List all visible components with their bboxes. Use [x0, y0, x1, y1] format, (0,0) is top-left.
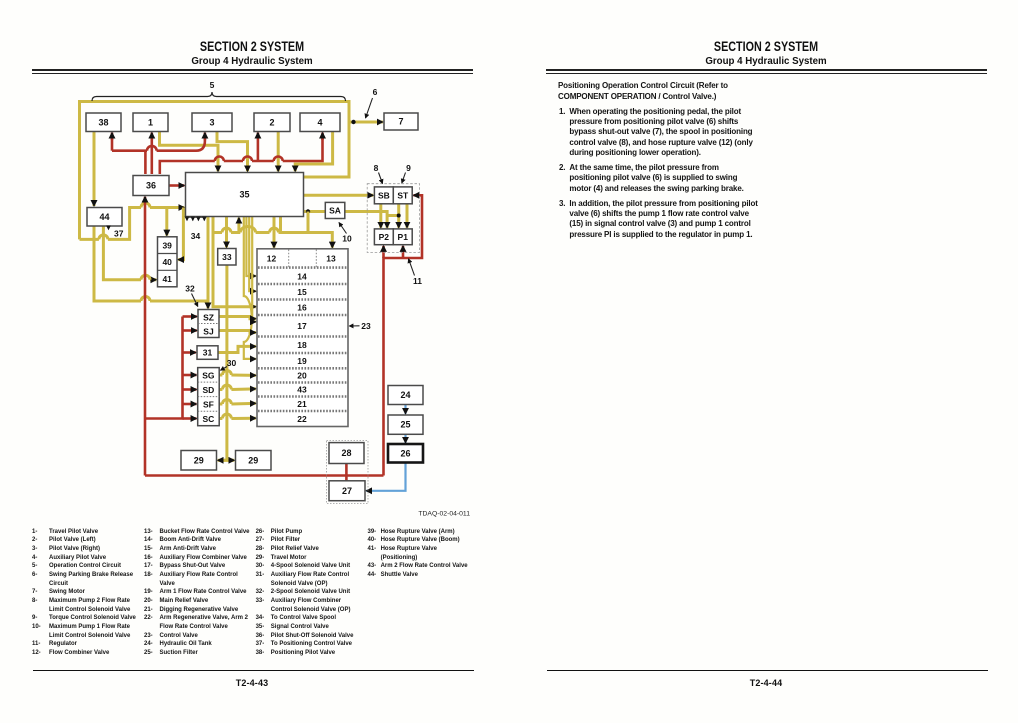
svg-text:SG: SG [202, 370, 215, 380]
svg-text:41: 41 [162, 274, 172, 284]
svg-text:4: 4 [317, 117, 322, 127]
svg-text:35: 35 [239, 190, 249, 200]
svg-text:25: 25 [400, 420, 410, 430]
svg-text:11: 11 [413, 276, 422, 286]
svg-text:32: 32 [185, 284, 195, 294]
svg-text:SZ: SZ [203, 312, 214, 322]
svg-text:22: 22 [297, 414, 307, 424]
svg-text:P1: P1 [398, 232, 409, 242]
svg-text:12: 12 [267, 254, 277, 264]
svg-text:34: 34 [191, 231, 201, 241]
svg-text:13: 13 [326, 254, 336, 264]
svg-text:9: 9 [406, 163, 411, 173]
svg-text:8: 8 [374, 163, 379, 173]
svg-text:3: 3 [209, 117, 214, 127]
svg-text:40: 40 [162, 257, 172, 267]
svg-text:7: 7 [398, 117, 403, 127]
svg-text:20: 20 [297, 371, 307, 381]
svg-text:29: 29 [248, 455, 258, 465]
svg-text:44: 44 [99, 212, 109, 222]
svg-text:36: 36 [146, 181, 156, 191]
svg-text:16: 16 [297, 302, 307, 312]
svg-text:SJ: SJ [203, 326, 214, 336]
svg-text:18: 18 [297, 340, 307, 350]
svg-text:24: 24 [400, 390, 410, 400]
svg-text:SD: SD [202, 385, 214, 395]
svg-text:39: 39 [162, 240, 172, 250]
svg-text:6: 6 [373, 87, 378, 97]
svg-text:SB: SB [378, 190, 390, 200]
svg-text:29: 29 [194, 455, 204, 465]
svg-text:30: 30 [227, 358, 237, 368]
svg-text:2: 2 [269, 117, 274, 127]
svg-text:43: 43 [297, 385, 307, 395]
svg-text:28: 28 [341, 448, 351, 458]
svg-text:10: 10 [342, 234, 352, 244]
svg-text:15: 15 [297, 287, 307, 297]
svg-text:1: 1 [148, 117, 153, 127]
svg-text:SC: SC [202, 414, 214, 424]
svg-text:P2: P2 [379, 232, 390, 242]
svg-text:37: 37 [114, 228, 124, 238]
svg-text:SA: SA [329, 205, 341, 215]
svg-text:33: 33 [222, 252, 232, 262]
svg-text:23: 23 [361, 321, 371, 331]
svg-text:38: 38 [98, 117, 108, 127]
svg-text:14: 14 [297, 272, 307, 282]
svg-text:ST: ST [397, 190, 409, 200]
svg-text:31: 31 [203, 348, 213, 358]
svg-text:5: 5 [210, 80, 215, 90]
svg-text:SF: SF [203, 399, 214, 409]
svg-text:17: 17 [297, 321, 307, 331]
svg-text:26: 26 [400, 448, 410, 458]
svg-text:19: 19 [297, 356, 307, 366]
svg-text:21: 21 [297, 399, 307, 409]
svg-text:27: 27 [342, 486, 352, 496]
svg-text:TDAQ-02-04-011: TDAQ-02-04-011 [418, 511, 470, 518]
